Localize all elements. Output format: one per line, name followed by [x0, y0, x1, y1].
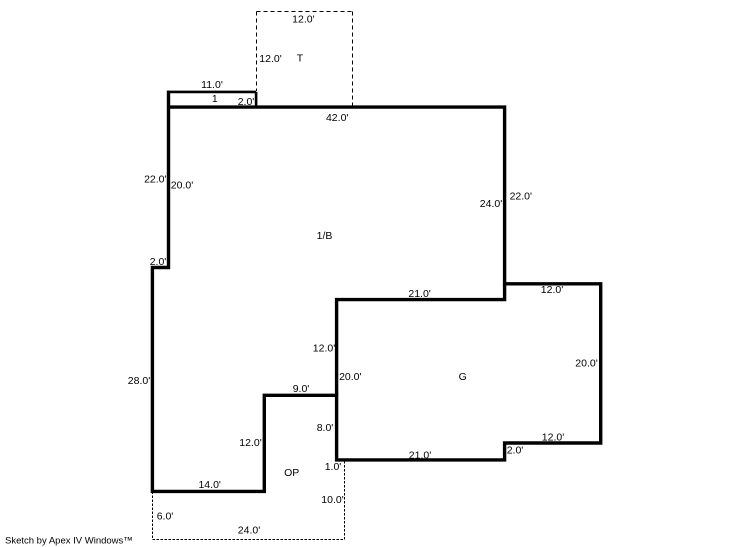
svg-text:21.0': 21.0' [409, 450, 431, 462]
svg-text:20.0': 20.0' [171, 180, 193, 192]
svg-text:1: 1 [212, 93, 218, 105]
svg-text:28.0': 28.0' [128, 375, 150, 387]
svg-text:6.0': 6.0' [157, 511, 174, 523]
svg-text:1.0': 1.0' [325, 461, 342, 473]
svg-text:42.0': 42.0' [326, 112, 348, 124]
svg-text:T: T [297, 53, 304, 65]
svg-text:2.0': 2.0' [150, 256, 167, 268]
svg-text:22.0': 22.0' [144, 174, 166, 186]
svg-text:OP: OP [284, 467, 299, 479]
svg-text:2.0': 2.0' [238, 96, 255, 108]
svg-text:12.0': 12.0' [292, 14, 314, 26]
svg-text:22.0': 22.0' [510, 191, 532, 203]
svg-text:12.0': 12.0' [313, 343, 335, 355]
svg-text:20.0': 20.0' [575, 358, 597, 370]
svg-text:1/B: 1/B [317, 230, 333, 242]
svg-text:11.0': 11.0' [201, 79, 223, 91]
svg-text:G: G [459, 371, 467, 383]
svg-text:8.0': 8.0' [317, 422, 334, 434]
svg-text:10.0': 10.0' [321, 494, 343, 506]
svg-text:12.0': 12.0' [541, 284, 563, 296]
svg-text:2.0': 2.0' [507, 445, 524, 457]
svg-text:12.0': 12.0' [239, 437, 261, 449]
svg-text:9.0': 9.0' [293, 383, 310, 395]
svg-text:12.0': 12.0' [542, 432, 564, 444]
svg-text:21.0': 21.0' [408, 288, 430, 300]
svg-text:24.0': 24.0' [238, 525, 260, 537]
svg-text:Sketch by Apex IV Windows™: Sketch by Apex IV Windows™ [5, 536, 133, 547]
svg-text:20.0': 20.0' [339, 371, 361, 383]
svg-text:14.0': 14.0' [198, 479, 220, 491]
svg-text:12.0': 12.0' [259, 53, 281, 65]
svg-text:24.0': 24.0' [480, 198, 502, 210]
